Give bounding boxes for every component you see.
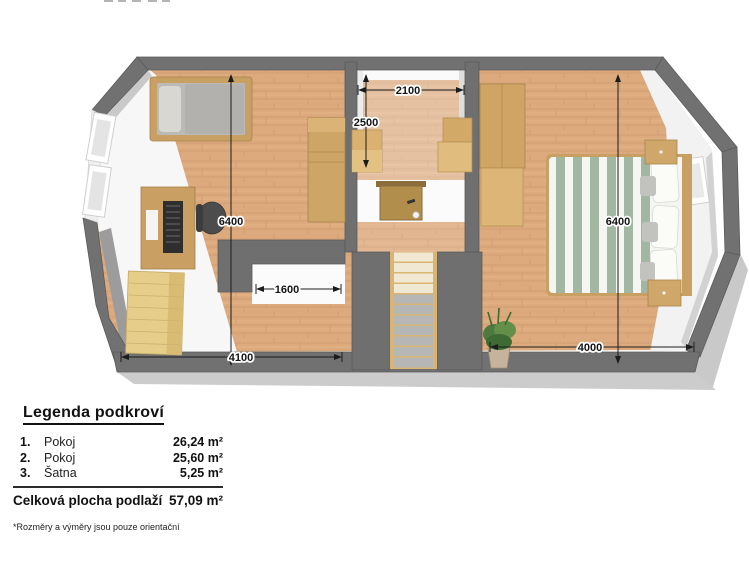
legend-title: Legenda podkroví (23, 404, 164, 425)
legend-row-number: 1. (20, 435, 37, 451)
stair-guard-wall-right (437, 252, 482, 370)
svg-text:4100: 4100 (229, 352, 253, 364)
legend-row-area: 5,25 m² (180, 466, 223, 482)
staircase (390, 252, 437, 369)
wardrobe-room2 (480, 84, 525, 226)
wall-top (137, 57, 663, 70)
closet-cabinet-right (438, 118, 472, 172)
closet-cabinet-left (352, 130, 382, 172)
legend-divider (13, 486, 223, 488)
legend-row-number: 3. (20, 466, 37, 482)
dresser (126, 271, 185, 355)
svg-text:6400: 6400 (219, 216, 243, 228)
laptop (163, 201, 183, 253)
svg-text:2100: 2100 (396, 85, 420, 97)
floorplan-canvas: 6400 2100 2500 1600 4100 4000 6400 (0, 0, 749, 400)
legend-total-area: 57,09 m² (169, 493, 223, 508)
door (376, 181, 426, 220)
legend-row-name: Pokoj (44, 451, 75, 467)
legend-row-area: 26,24 m² (173, 435, 223, 451)
legend-row-number: 2. (20, 451, 37, 467)
pillow (159, 86, 181, 132)
wardrobe-room1 (308, 118, 345, 222)
page: { "palette": { "wall_gray": "#717171", "… (0, 0, 749, 562)
bed-single (150, 77, 252, 141)
legend-total-label: Celková plocha podlaží (13, 493, 162, 508)
svg-text:1600: 1600 (275, 284, 299, 296)
wall-right-mid (722, 147, 740, 255)
legend: Legenda podkroví 1. Pokoj 26,24 m² 2. Po… (13, 404, 223, 532)
legend-rows: 1. Pokoj 26,24 m² 2. Pokoj 25,60 m² 3. Š… (13, 435, 223, 482)
svg-text:6400: 6400 (606, 216, 630, 228)
svg-text:2500: 2500 (354, 117, 378, 129)
paper (146, 210, 158, 240)
legend-row: 2. Pokoj 25,60 m² (13, 451, 223, 467)
legend-total-row: Celková plocha podlaží 57,09 m² (13, 493, 223, 508)
nightstand-bottom (648, 280, 681, 306)
legend-row-area: 25,60 m² (173, 451, 223, 467)
door-knob (413, 212, 419, 218)
legend-row-name: Šatna (44, 466, 77, 482)
svg-text:4000: 4000 (578, 342, 602, 354)
legend-row: 3. Šatna 5,25 m² (13, 466, 223, 482)
headboard (682, 154, 692, 296)
stair-guard-wall-left (352, 252, 390, 370)
legend-row-name: Pokoj (44, 435, 75, 451)
cropped-logo-artifact (104, 0, 170, 2)
desk (141, 187, 195, 269)
legend-footnote: *Rozměry a výměry jsou pouze orientační (13, 522, 223, 532)
legend-row: 1. Pokoj 26,24 m² (13, 435, 223, 451)
nightstand-top (645, 140, 677, 164)
